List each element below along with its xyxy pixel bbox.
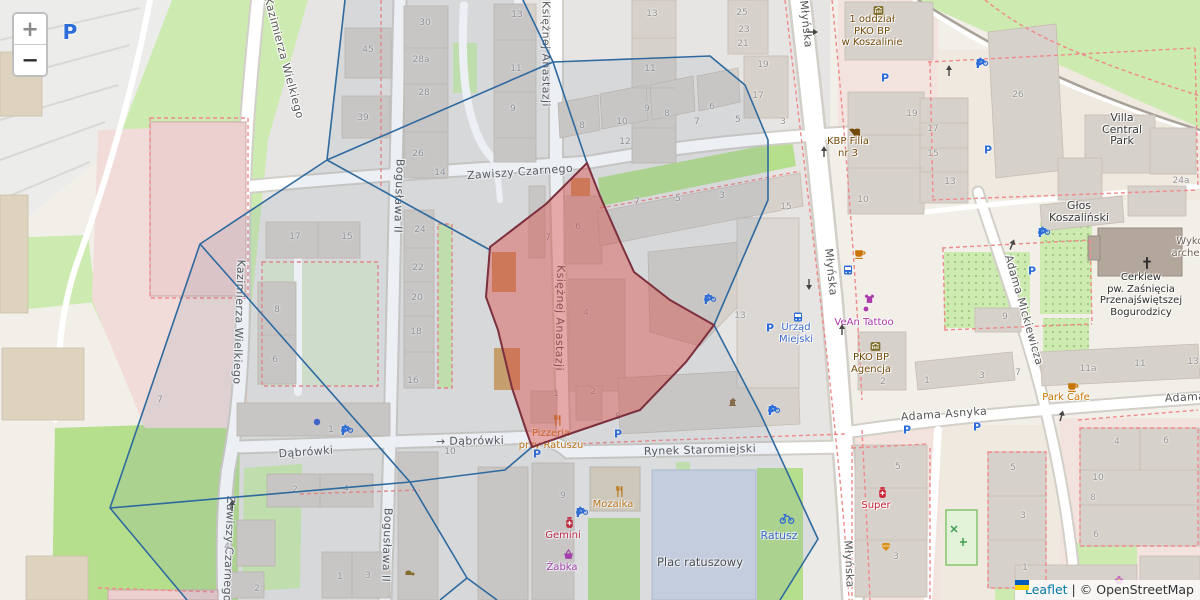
building-number: 15	[341, 232, 352, 242]
building-number: 6	[272, 355, 278, 365]
poi-label: GłosKoszaliński	[1049, 200, 1109, 223]
poi-label: VillaCentralPark	[1102, 112, 1142, 147]
building-number: 11	[510, 64, 521, 74]
parking-icon: P	[973, 421, 981, 434]
building-number: 24a	[1173, 176, 1190, 186]
building-number: 8	[1090, 493, 1096, 503]
parking-icon: P	[1028, 265, 1036, 278]
parking-icon: P	[63, 20, 78, 44]
parking-icon: P	[704, 293, 713, 307]
building-number: 8	[579, 121, 585, 131]
street-name-label: Bogusława II	[391, 159, 407, 234]
building-number: 3	[979, 371, 985, 381]
poi-label: Super	[861, 500, 890, 512]
building-number: 28	[418, 88, 429, 98]
poi-label: Plac ratuszowy	[657, 557, 743, 569]
parking-icon: P	[614, 428, 622, 441]
building-number: 26	[1012, 90, 1023, 100]
building-number: 11	[644, 64, 655, 74]
zoom-in-button[interactable]: +	[14, 14, 46, 45]
street-name-label: → Dąbrówki	[436, 434, 505, 448]
building-number: 21	[737, 39, 748, 49]
parking-icon: P	[766, 322, 774, 335]
poi-label: Mozaika	[593, 499, 634, 511]
building-number: 17	[927, 124, 938, 134]
building-number: 45	[362, 45, 373, 55]
building-number: 7	[1015, 368, 1021, 378]
building-number: 13	[511, 10, 522, 20]
building-number: 4	[1114, 437, 1120, 447]
building-number: 9	[510, 104, 516, 114]
building-number: 25	[736, 8, 747, 18]
building-number: 7	[157, 395, 163, 405]
building-number: 17	[289, 232, 300, 242]
parking-icon: P	[533, 448, 541, 461]
building-number: 2	[254, 584, 260, 594]
building-number: 22	[412, 263, 423, 273]
building-number: 1	[924, 376, 930, 386]
poi-label: Cerkiewpw. ZaśnięciaPrzenajświętszejBogu…	[1100, 272, 1182, 318]
building-number: 28a	[413, 55, 430, 65]
building-number: 19	[906, 109, 917, 119]
parking-icon: P	[976, 57, 985, 71]
poi-label: Żabka	[546, 562, 577, 574]
parking-icon: P	[1038, 226, 1047, 240]
building-number: 19	[757, 60, 768, 70]
building-number: 5	[895, 462, 901, 472]
building-number: 3	[365, 571, 371, 581]
parking-icon: P	[984, 144, 992, 157]
poi-label: UrządMiejski	[779, 322, 813, 345]
parking-icon: P	[768, 404, 777, 418]
building-number: 13	[944, 177, 955, 187]
building-number: 3	[893, 552, 899, 562]
building-number: 13	[734, 311, 745, 321]
building-number: 15	[780, 202, 791, 212]
building-number: 3	[780, 117, 786, 127]
building-number: 15	[927, 149, 938, 159]
osm-attribution: © OpenStreetMap	[1080, 582, 1194, 597]
building-number: 10	[444, 447, 455, 457]
building-number: 6	[1093, 530, 1099, 540]
building-number: 4	[343, 484, 349, 494]
building-number: 16	[407, 376, 418, 386]
building-number: 5	[1010, 463, 1016, 473]
building-number: 8	[274, 305, 280, 315]
parking-icon: P	[341, 424, 350, 438]
building-number: 13	[1187, 357, 1198, 367]
building-number: 1	[1022, 563, 1028, 573]
building-number: 26	[412, 149, 423, 159]
leaflet-link[interactable]: Leaflet	[1025, 582, 1068, 597]
building-number: 2	[880, 377, 886, 387]
building-number: 5	[675, 194, 681, 204]
poi-label: Wykoparcheolo	[1171, 236, 1200, 259]
building-number: 24	[414, 225, 425, 235]
building-number: 17	[752, 91, 763, 101]
street-name-label: Księżnej Anastazji	[540, 1, 553, 107]
building-number: 30	[419, 18, 430, 28]
poi-label: PKO BPAgencja	[851, 352, 891, 375]
building-number: 20	[411, 293, 422, 303]
attribution: Leaflet | © OpenStreetMap	[1015, 580, 1200, 600]
building-number: 12	[619, 137, 630, 147]
building-number: 5	[735, 115, 741, 125]
parking-icon: P	[881, 72, 889, 85]
zoom-control: + −	[12, 12, 48, 77]
zoom-out-button[interactable]: −	[14, 45, 46, 75]
poi-label: Ratusz	[761, 530, 798, 542]
building-number: 11a	[1080, 364, 1097, 374]
parking-icon: P	[903, 424, 911, 437]
building-number: 11	[1134, 359, 1145, 369]
poi-label: 1 oddziałPKO BPw Koszalinie	[842, 14, 903, 49]
building-number: 3	[1020, 511, 1026, 521]
building-number: 13	[646, 9, 657, 19]
building-number: 14	[434, 168, 445, 178]
map-canvas[interactable]: + − Leaflet | © OpenStreetMap Kazimierza…	[0, 0, 1200, 600]
building-number: 1	[337, 572, 343, 582]
building-number: 39	[357, 113, 368, 123]
building-number: 7	[634, 197, 640, 207]
building-number: 2	[292, 485, 298, 495]
building-number: 9	[560, 491, 566, 501]
street-name-label: Bogusława II	[379, 508, 395, 583]
street-name-label: Młyńska	[841, 540, 856, 588]
building-number: 7	[694, 117, 700, 127]
parking-icon: P	[576, 506, 585, 520]
poi-label: KBP Filianr 3	[827, 136, 869, 159]
building-number: 10	[1092, 473, 1103, 483]
building-number: 23	[738, 25, 749, 35]
building-number: 1	[328, 425, 334, 435]
poi-label: Gemini	[545, 530, 581, 542]
building-number: 8	[664, 109, 670, 119]
building-number: 3	[719, 191, 725, 201]
poi-label: Park Cafe	[1042, 392, 1090, 404]
building-number: 4	[224, 542, 230, 552]
building-number: 6	[709, 102, 715, 112]
attribution-separator: |	[1072, 582, 1076, 597]
building-number: 9	[644, 104, 650, 114]
building-number: 6	[1163, 436, 1169, 446]
building-number: 18	[410, 327, 421, 337]
building-number: 9	[1002, 312, 1008, 322]
building-number: 10	[616, 117, 627, 127]
building-number: 10	[857, 195, 868, 205]
